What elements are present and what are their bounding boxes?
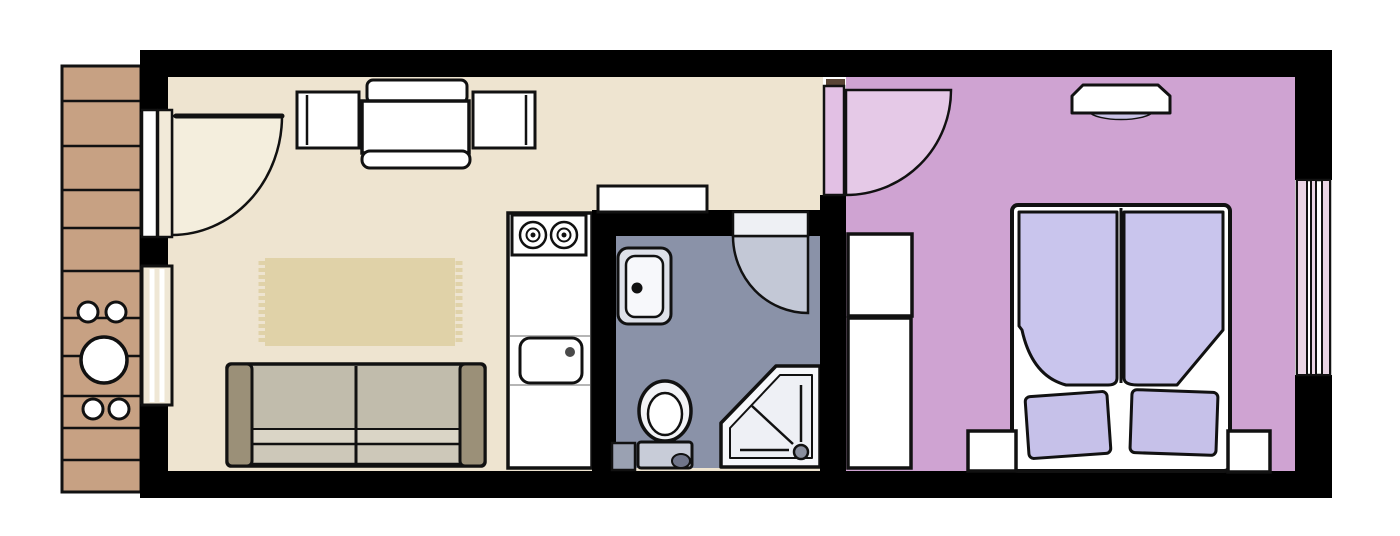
bedroom-door-threshold [826, 79, 845, 85]
bathroom-sink-basin [626, 256, 663, 317]
nightstand-right [1228, 431, 1270, 472]
bathroom-door-leaf [733, 212, 808, 236]
hall-shelf [598, 186, 707, 212]
sofa-armrest-right [460, 364, 485, 466]
bathroom-sink-drain [632, 283, 643, 294]
dining-table [362, 101, 469, 153]
toilet-bowl-inner [648, 393, 682, 435]
stove [512, 215, 586, 255]
toilet-flush-button [672, 454, 690, 468]
nightstand-left [968, 431, 1016, 471]
wardrobe-lower [848, 318, 911, 468]
bathroom-wall-left [592, 210, 616, 471]
wall-right-upper [1295, 50, 1332, 180]
wall-bottom [140, 471, 1332, 498]
balcony-stool [78, 302, 98, 322]
bedroom-door-leaf [824, 86, 844, 195]
bedroom-window-strip [1311, 180, 1316, 375]
dining-bench-bottom [362, 151, 470, 168]
sofa-armrest-left [227, 364, 252, 466]
pillow-right [1130, 390, 1218, 456]
entrance-door-jamb [142, 110, 157, 237]
balcony-stool [106, 302, 126, 322]
bathroom-duct [612, 443, 635, 470]
wall-top [140, 50, 1332, 77]
kitchen-sink-drain [565, 347, 575, 357]
pillow-left [1025, 391, 1111, 459]
floor-plan-canvas [0, 0, 1400, 536]
kitchen-sink [520, 338, 582, 383]
entrance-door-jamb [158, 110, 172, 237]
wall-shelf [1072, 85, 1170, 113]
floor-plan [0, 0, 1400, 536]
balcony-stool [109, 399, 129, 419]
wall-left-upper [140, 50, 168, 112]
stove-burner-dot [531, 233, 536, 238]
bedroom-wall-left [820, 195, 846, 471]
shower-drain [794, 445, 808, 459]
stove-burner-dot [562, 233, 567, 238]
rug [265, 258, 455, 346]
bedroom-window-strip [1297, 180, 1307, 375]
balcony-table [81, 337, 127, 383]
wall-left-lower [140, 404, 169, 474]
duvet-left [1019, 212, 1117, 385]
wall-right-lower [1295, 375, 1332, 498]
living-room-window [142, 266, 172, 405]
balcony-stool [83, 399, 103, 419]
wardrobe-upper [848, 234, 912, 316]
bedroom-window-strip [1322, 180, 1330, 375]
